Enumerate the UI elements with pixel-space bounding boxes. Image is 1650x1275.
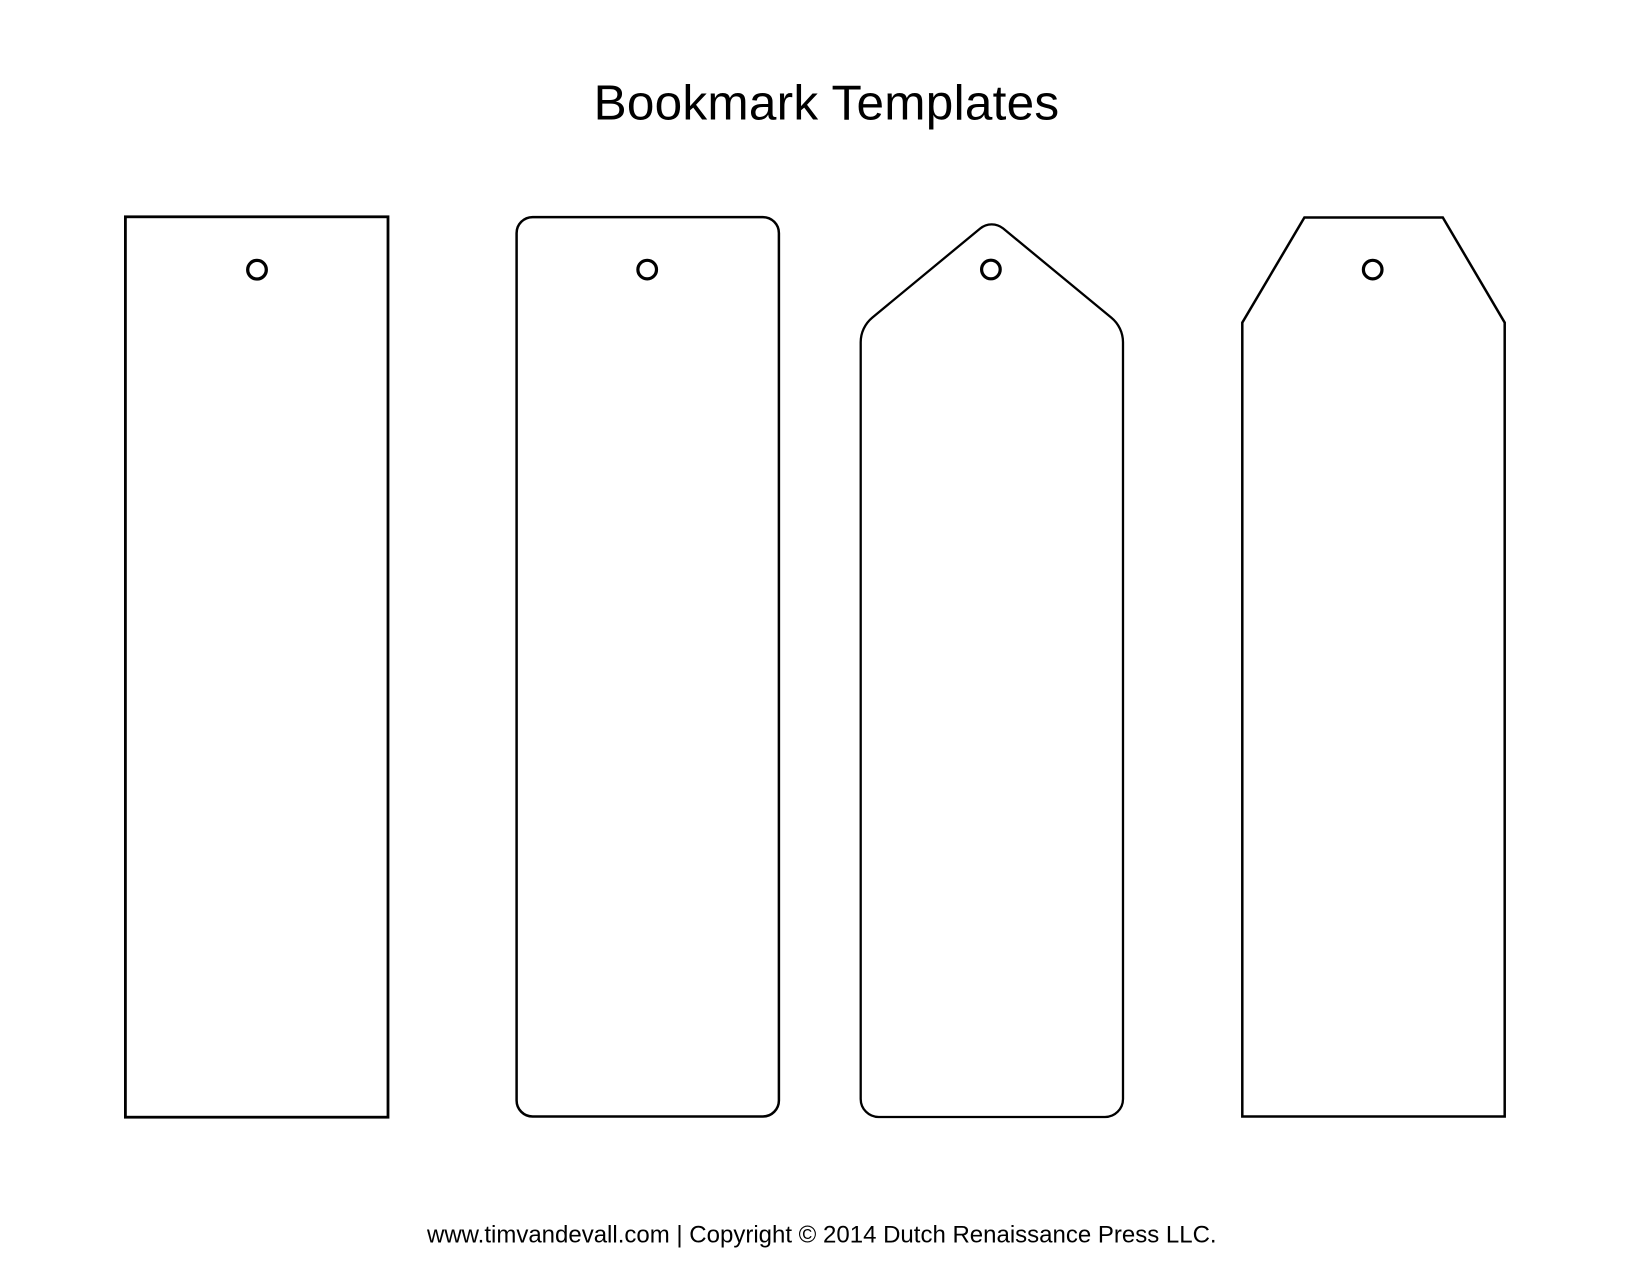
svg-text:Bookmark Templates: Bookmark Templates (594, 75, 1060, 130)
svg-text:www.timvandevall.com | Copyrig: www.timvandevall.com | Copyright © 2014 … (426, 1222, 1217, 1249)
